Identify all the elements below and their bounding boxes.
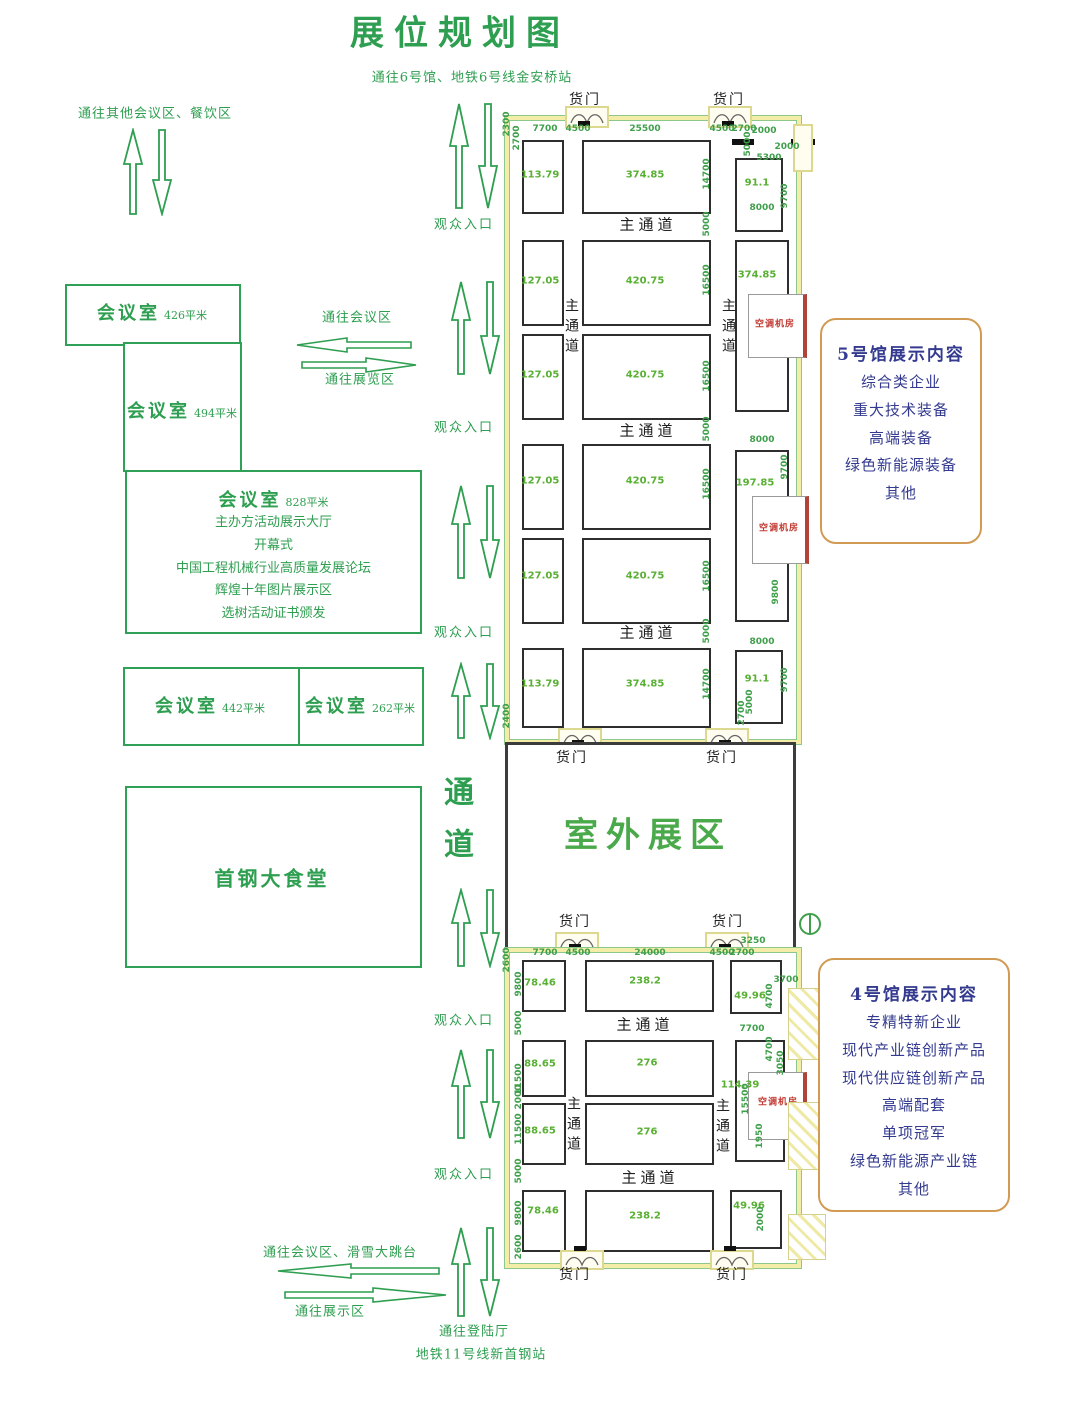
- hall4-info-line: 其他: [826, 1176, 1002, 1204]
- booth-area-value: 113.79: [521, 679, 560, 690]
- door-leaf: [574, 1246, 586, 1251]
- up-arrow-icon: [450, 888, 472, 968]
- dim-label: 8000: [749, 637, 774, 647]
- hall5-info-title: 5号馆展示内容: [828, 340, 974, 365]
- dim-label: 5000: [514, 1010, 524, 1035]
- meeting-room-262-label: 会议室262平米: [305, 692, 415, 718]
- dim-label: 4700: [765, 1036, 775, 1061]
- dim-label: 5300: [756, 153, 781, 163]
- booth-area-value: 127.05: [521, 571, 560, 582]
- dim-label: 9700: [780, 454, 790, 479]
- door-leaf: [724, 1246, 736, 1251]
- down-arrow-icon: [479, 280, 501, 376]
- dim-label: 5000: [745, 689, 755, 714]
- dim-label: 5000: [702, 416, 712, 441]
- dim-label: 2700: [512, 125, 522, 150]
- note-to-meeting-area: 通往会议区: [322, 307, 392, 326]
- dim-label: 8000: [749, 435, 774, 445]
- hall5-info-line: 综合类企业: [828, 369, 974, 397]
- event-line: 选树活动证书颁发: [127, 603, 420, 626]
- up-down-arrows: [450, 888, 501, 968]
- booth-area-value: 49.96: [734, 991, 766, 1002]
- booth-area-value: 127.05: [521, 370, 560, 381]
- cargo-door-label: 货门: [559, 911, 591, 931]
- main-aisle-label: 主通道: [621, 1167, 678, 1188]
- dim-label: 2300: [502, 111, 512, 136]
- dim-label: 2000: [774, 142, 799, 152]
- note-metro-line11: 地铁11号线新首钢站: [416, 1344, 547, 1363]
- down-arrow-icon: [479, 662, 501, 740]
- booth: [522, 444, 564, 530]
- hall5-info-box: 5号馆展示内容 综合类企业 重大技术装备 高端装备 绿色新能源装备 其他: [820, 318, 982, 544]
- main-aisle-label: 主通道: [619, 622, 676, 643]
- up-arrow-icon: [450, 662, 472, 740]
- dim-label: 9800: [771, 579, 781, 604]
- note-to-exhibit-area: 通往展览区: [325, 369, 395, 388]
- booth-area-value: 114.39: [721, 1080, 760, 1091]
- dim-label: 16500: [702, 360, 712, 391]
- hall4-info-line: 绿色新能源产业链: [826, 1148, 1002, 1176]
- booth-area-value: 420.75: [626, 571, 665, 582]
- hall5-info-line: 重大技术装备: [828, 397, 974, 425]
- booth-area-value: 374.85: [626, 170, 665, 181]
- booth-area-value: 113.79: [521, 170, 560, 181]
- cargo-door-label: 货门: [559, 1264, 591, 1284]
- meeting-room-442-label: 会议室442平米: [155, 692, 265, 718]
- dim-label: 9800: [514, 1200, 524, 1225]
- dim-label: 7700: [739, 1024, 764, 1034]
- cargo-door-label: 货门: [712, 911, 744, 931]
- dim-label: 3250: [740, 936, 765, 946]
- down-arrow-icon: [151, 128, 173, 216]
- event-line: 辉煌十年图片展示区: [127, 580, 420, 603]
- cargo-door-label: 货门: [716, 1264, 748, 1284]
- hall4-info-line: 现代产业链创新产品: [826, 1037, 1002, 1065]
- up-down-arrows: [450, 662, 501, 740]
- cargo-door-label: 货门: [713, 89, 745, 109]
- cargo-door-label: 货门: [556, 747, 588, 767]
- booth-area-value: 78.46: [527, 1206, 559, 1217]
- booth-area-value: 78.46: [524, 978, 556, 989]
- up-arrow-icon: [122, 128, 144, 216]
- up-down-arrows: [450, 280, 501, 376]
- note-to-display-area: 通往展示区: [295, 1301, 365, 1320]
- booth-area-value: 197.85: [736, 478, 775, 489]
- down-arrow-icon: [479, 1048, 501, 1140]
- main-aisle-label: 主通道: [619, 420, 676, 441]
- dim-label: 24000: [634, 948, 665, 958]
- dim-label: 2700: [729, 948, 754, 958]
- dim-label: 5000: [743, 131, 753, 156]
- cargo-door-label: 货门: [706, 747, 738, 767]
- subtitle-to-hall6: 通往6号馆、地铁6号线金安桥站: [372, 67, 573, 86]
- page-title: 展位规划图: [350, 6, 570, 55]
- main-aisle-label-vertical: 主通道: [563, 1096, 583, 1156]
- up-down-arrows: [450, 484, 501, 580]
- dim-label: 4700: [765, 983, 775, 1008]
- up-down-arrows: [448, 102, 499, 210]
- dim-label: 16500: [702, 468, 712, 499]
- visitor-entrance-label: 观众入口: [434, 1164, 494, 1183]
- hall4-info-line: 现代供应链创新产品: [826, 1065, 1002, 1093]
- dim-label: 2000: [751, 126, 776, 136]
- cargo-door-label: 货门: [569, 89, 601, 109]
- ac-room-label: 空调机房: [759, 521, 799, 534]
- outdoor-area-label: 室外展区: [564, 808, 732, 857]
- visitor-entrance-label: 观众入口: [434, 417, 494, 436]
- booth-area-value: 91.1: [745, 178, 770, 189]
- up-arrow-icon: [450, 1226, 472, 1318]
- down-arrow-icon: [477, 102, 499, 210]
- hall4-info-box: 4号馆展示内容 专精特新企业 现代产业链创新产品 现代供应链创新产品 高端配套 …: [818, 958, 1010, 1212]
- dim-label: 5000: [702, 211, 712, 236]
- meeting-room-494-label: 会议室494平米: [127, 397, 237, 423]
- dim-label: 2600: [502, 947, 512, 972]
- dim-label: 16500: [702, 264, 712, 295]
- event-line: 中国工程机械行业高质量发展论坛: [127, 558, 420, 581]
- main-aisle-label: 主通道: [616, 1014, 673, 1035]
- meeting-room-828: 会议室828平米 主办方活动展示大厅 开幕式 中国工程机械行业高质量发展论坛 辉…: [125, 470, 422, 634]
- corridor-label: 通道: [433, 776, 477, 880]
- hall4-info-line: 高端配套: [826, 1092, 1002, 1120]
- booth-area-value: 374.85: [738, 270, 777, 281]
- booth-area-value: 238.2: [629, 976, 661, 987]
- canteen-label: 首钢大食堂: [215, 863, 330, 892]
- hall5-info-line: 其他: [828, 480, 974, 508]
- dim-label: 9700: [780, 183, 790, 208]
- dim-label: 8000: [749, 203, 774, 213]
- booth-area-value: 276: [637, 1127, 658, 1138]
- up-arrow-icon: [450, 1048, 472, 1140]
- left-arrow-icon: [295, 336, 413, 354]
- booth-area-value: 420.75: [626, 276, 665, 287]
- ac-room-label: 空调机房: [755, 317, 795, 330]
- dim-label: 15500: [741, 1083, 751, 1114]
- main-aisle-label-vertical: 主通道: [712, 1098, 732, 1158]
- down-arrow-icon: [479, 1226, 501, 1318]
- dim-label: 3050: [776, 1050, 786, 1075]
- stair-box: [788, 1214, 826, 1260]
- down-arrow-icon: [479, 888, 501, 968]
- booth-area-value: 420.75: [626, 476, 665, 487]
- hall4-info-title: 4号馆展示内容: [826, 980, 1002, 1005]
- booth-area-value: 374.85: [626, 679, 665, 690]
- booth-area-value: 127.05: [521, 476, 560, 487]
- dim-label: 5000: [702, 618, 712, 643]
- dim-label: 14700: [702, 158, 712, 189]
- booth-area-value: 276: [637, 1058, 658, 1069]
- dim-label: 16500: [702, 560, 712, 591]
- booth-area-value: 88.65: [524, 1059, 556, 1070]
- dim-label: 14700: [702, 668, 712, 699]
- hall5-info-line: 绿色新能源装备: [828, 452, 974, 480]
- booth-area-value: 420.75: [626, 370, 665, 381]
- booth: [735, 158, 783, 232]
- dim-label: 9800: [514, 971, 524, 996]
- dim-label: 25500: [629, 124, 660, 134]
- note-to-arrival-hall: 通往登陆厅: [439, 1321, 509, 1340]
- hall4-info-line: 单项冠军: [826, 1120, 1002, 1148]
- dim-label: 7700: [532, 948, 557, 958]
- dim-label: 11500: [514, 1113, 524, 1144]
- note-to-meeting-ski: 通往会议区、滑雪大跳台: [263, 1242, 417, 1261]
- dim-label: 1950: [755, 1123, 765, 1148]
- booth-area-value: 88.65: [524, 1126, 556, 1137]
- left-arrow-icon: [276, 1262, 441, 1280]
- up-arrow-icon: [448, 102, 470, 210]
- meeting-room-828-label: 会议室828平米: [127, 486, 420, 512]
- dim-label: 2000: [756, 1206, 766, 1231]
- floor-plan: 展位规划图 通往6号馆、地铁6号线金安桥站 通往其他会议区、餐饮区 通往会议区 …: [0, 0, 1080, 1404]
- booth-area-value: 127.05: [521, 276, 560, 287]
- visitor-entrance-label: 观众入口: [434, 1010, 494, 1029]
- event-line: 主办方活动展示大厅: [127, 512, 420, 535]
- hall5-info-line: 高端装备: [828, 425, 974, 453]
- dim-label: 4500: [565, 124, 590, 134]
- main-aisle-label-vertical: 主通道: [718, 298, 738, 358]
- booth-area-value: 91.1: [745, 674, 770, 685]
- dim-label: 5000: [514, 1158, 524, 1183]
- up-down-arrows: [450, 1048, 501, 1140]
- visitor-entrance-label: 观众入口: [434, 622, 494, 641]
- booth: [582, 444, 711, 530]
- visitor-entrance-label: 观众入口: [434, 214, 494, 233]
- booth: [522, 1190, 566, 1252]
- up-arrow-icon: [450, 484, 472, 580]
- hall4-info-line: 专精特新企业: [826, 1009, 1002, 1037]
- up-down-arrows: [450, 1226, 501, 1318]
- grid-axis-marker: [798, 912, 822, 936]
- down-arrow-icon: [479, 484, 501, 580]
- booth: [585, 1040, 714, 1097]
- dim-label: 4500: [565, 948, 590, 958]
- dim-label: 2000: [514, 1084, 524, 1109]
- dim-label: 7700: [532, 124, 557, 134]
- note-to-other-meeting-area: 通往其他会议区、餐饮区: [78, 103, 232, 122]
- meeting-room-426-label: 会议室426平米: [97, 299, 207, 325]
- up-arrow-icon: [450, 280, 472, 376]
- booth-area-value: 238.2: [629, 1211, 661, 1222]
- dim-label: 3700: [773, 975, 798, 985]
- event-line: 开幕式: [127, 535, 420, 558]
- dim-label: 2400: [502, 703, 512, 728]
- main-aisle-label: 主通道: [619, 214, 676, 235]
- up-down-arrows: [122, 128, 173, 216]
- main-aisle-label-vertical: 主通道: [561, 298, 581, 358]
- dim-label: 9700: [780, 667, 790, 692]
- dim-label: 2600: [514, 1234, 524, 1259]
